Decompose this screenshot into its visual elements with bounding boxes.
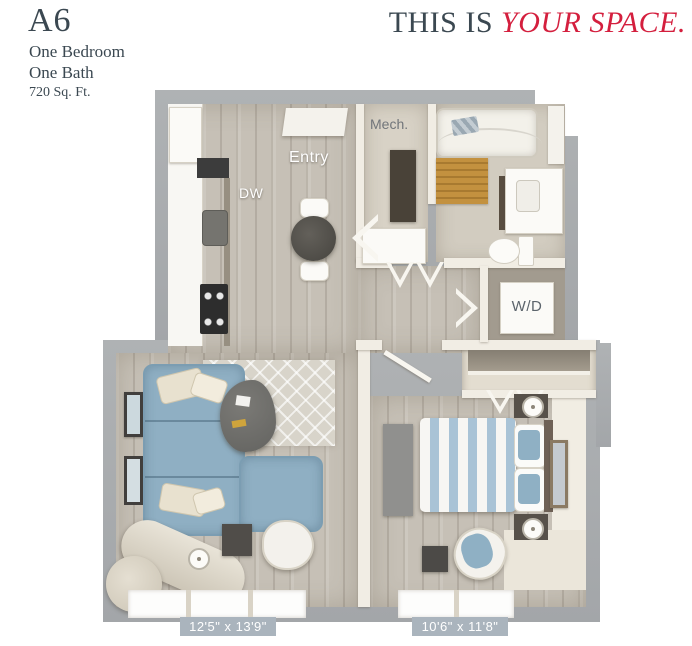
plan-code: A6: [28, 2, 72, 40]
tagline: THIS IS YOUR SPACE.: [389, 6, 686, 40]
bed-pillow-blue-1: [518, 430, 540, 460]
side-table-bedroom: [422, 546, 448, 572]
window-mullion: [186, 590, 191, 618]
plan-detail-sqft: 720 Sq. Ft.: [29, 85, 90, 101]
tagline-accent: YOUR SPACE.: [501, 6, 686, 39]
water-heater: [390, 150, 416, 222]
accent-armchair: [262, 520, 314, 570]
bath-mat: [436, 158, 488, 204]
mech-shelf: [362, 228, 426, 264]
side-table-living: [222, 524, 252, 556]
dining-table: [291, 216, 336, 261]
washer-dryer-unit: W/D: [500, 282, 554, 334]
bed-duvet: [420, 418, 516, 512]
bedroom-dimensions-badge: 10'6" x 11'8": [412, 617, 508, 636]
plan-detail-bedrooms: One Bedroom: [29, 42, 125, 62]
kitchen-sink: [202, 210, 228, 246]
hall-bottom-wall-left: [356, 340, 382, 350]
mech-room-label: Mech.: [370, 116, 408, 132]
dining-chair-top: [300, 198, 329, 218]
coffee-table-book: [235, 395, 250, 407]
window-mullion: [248, 590, 253, 618]
laundry-left-wall: [480, 266, 488, 342]
toilet-tank: [518, 236, 534, 266]
hall-bottom-wall-right: [442, 340, 596, 350]
wall-art-frame-1: [124, 392, 143, 437]
plan-detail-baths: One Bath: [29, 63, 94, 83]
living-room-windows: [128, 590, 306, 618]
tagline-prefix: THIS IS: [389, 6, 493, 39]
floor-lamp: [188, 548, 210, 570]
bed-pillow-blue-2: [518, 474, 540, 504]
entry-label: Entry: [289, 149, 329, 167]
living-dimensions-badge: 12'5" x 13'9": [180, 617, 276, 636]
floorplan-page: A6 One Bedroom One Bath 720 Sq. Ft. THIS…: [0, 0, 692, 646]
bedroom-wall-art: [550, 440, 568, 508]
window-mullion: [454, 590, 459, 618]
vanity-sink: [516, 180, 540, 212]
bedroom-console: [383, 424, 413, 516]
dishwasher-label: DW: [239, 185, 263, 201]
range-hood: [197, 158, 229, 178]
living-bedroom-divider-wall: [358, 345, 370, 607]
outer-wall-closet-bump: [596, 343, 611, 447]
entry-door-panel: [282, 108, 348, 136]
washer-dryer-label: W/D: [512, 298, 543, 315]
stove-cooktop: [200, 284, 228, 334]
mech-bath-divider-wall: [428, 104, 436, 204]
refrigerator: [169, 107, 202, 163]
dining-chair-bottom: [300, 261, 329, 281]
wall-art-frame-2: [124, 456, 143, 505]
nightstand-lamp-bottom: [522, 518, 544, 540]
coffee-table: [220, 380, 276, 452]
shower-glass-panel: [548, 106, 564, 164]
toilet-bowl: [488, 238, 520, 264]
bedroom-windows: [398, 590, 514, 618]
closet-shelf-shadow: [468, 350, 590, 372]
closet-rod: [468, 371, 590, 375]
nightstand-lamp-top: [522, 396, 544, 418]
